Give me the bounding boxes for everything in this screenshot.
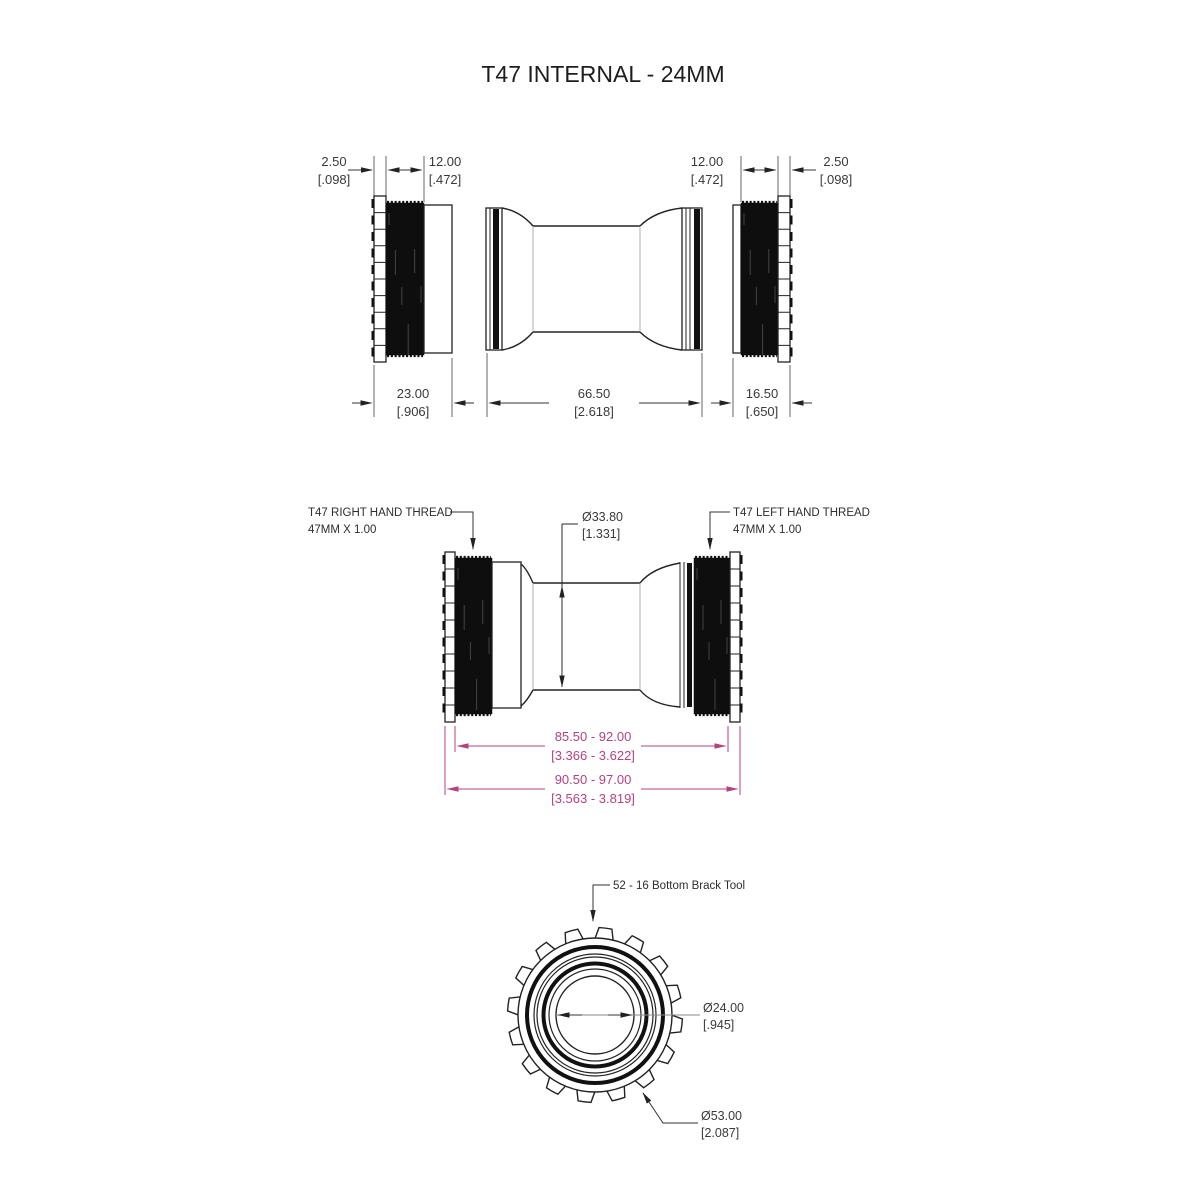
left-cup-body bbox=[424, 205, 452, 353]
dim-bore-mid-mm: Ø33.80 bbox=[582, 510, 623, 524]
dim-thread-right-in: [.472] bbox=[691, 172, 724, 187]
dim-outer-in: [2.087] bbox=[701, 1126, 739, 1140]
dim-shell-inner-in: [3.366 - 3.622] bbox=[551, 748, 635, 763]
assembled-right-threads bbox=[694, 558, 730, 714]
dim-left-cup-mm: 23.00 bbox=[397, 386, 430, 401]
dim-thread-right-mm: 12.00 bbox=[691, 154, 724, 169]
right-cup-body bbox=[733, 205, 741, 353]
dim-thread-left-mm: 12.00 bbox=[429, 154, 462, 169]
spindle-sleeve bbox=[486, 208, 702, 350]
leader-outer-diameter bbox=[643, 1093, 698, 1123]
assembled-view: T47 RIGHT HAND THREAD 47MM X 1.00 T47 LE… bbox=[308, 507, 870, 806]
dim-right-cup-mm: 16.50 bbox=[746, 386, 779, 401]
dim-outer-mm: Ø53.00 bbox=[701, 1109, 742, 1123]
left-cup-threads bbox=[386, 203, 424, 355]
dim-sleeve-in: [2.618] bbox=[574, 404, 614, 419]
dim-thread-left-in: [.472] bbox=[429, 172, 462, 187]
dim-flange-left-mm: 2.50 bbox=[321, 154, 346, 169]
assembled-left-threads bbox=[455, 558, 492, 714]
tool-label: 52 - 16 Bottom Brack Tool bbox=[613, 880, 745, 892]
dim-flange-left-in: [.098] bbox=[318, 172, 351, 187]
dim-bore-mid-in: [1.331] bbox=[582, 527, 620, 541]
dim-bore-mid-lines bbox=[562, 524, 578, 687]
dim-left-cup-in: [.906] bbox=[397, 404, 430, 419]
leader-tool bbox=[593, 885, 610, 921]
assembled-center-tube bbox=[521, 562, 692, 708]
left-hand-thread-label-line1: T47 LEFT HAND THREAD bbox=[733, 507, 870, 519]
page-title: T47 INTERNAL - 24MM bbox=[481, 61, 724, 87]
right-cup-threads bbox=[741, 203, 778, 355]
leader-left-hand-thread bbox=[710, 512, 730, 549]
left-hand-thread-label-line2: 47MM X 1.00 bbox=[733, 524, 801, 536]
dim-sleeve-mm: 66.50 bbox=[578, 386, 611, 401]
dim-shell-outer-mm: 90.50 - 97.00 bbox=[555, 772, 632, 787]
dim-flange-right-mm: 2.50 bbox=[823, 154, 848, 169]
dim-shell-inner-mm: 85.50 - 92.00 bbox=[555, 729, 632, 744]
assembled-left-body bbox=[492, 562, 521, 708]
right-hand-thread-label-line2: 47MM X 1.00 bbox=[308, 524, 376, 536]
dim-bore-end-mm: Ø24.00 bbox=[703, 1001, 744, 1015]
dim-bore-end-in: [.945] bbox=[703, 1018, 734, 1032]
right-hand-thread-label-line1: T47 RIGHT HAND THREAD bbox=[308, 507, 453, 519]
dim-right-cup-in: [.650] bbox=[746, 404, 779, 419]
leader-right-hand-thread bbox=[450, 512, 473, 549]
top-exploded-view: 2.50 [.098] 12.00 [.472] 12.00 [.472] 2.… bbox=[318, 154, 853, 419]
dim-flange-right-in: [.098] bbox=[820, 172, 853, 187]
technical-drawing: T47 INTERNAL - 24MM 2.50 [.098] 12.00 [.… bbox=[0, 0, 1196, 1198]
dim-shell-outer-in: [3.563 - 3.819] bbox=[551, 791, 635, 806]
end-view: 52 - 16 Bottom Brack Tool Ø24.00 [.945] … bbox=[508, 880, 746, 1140]
